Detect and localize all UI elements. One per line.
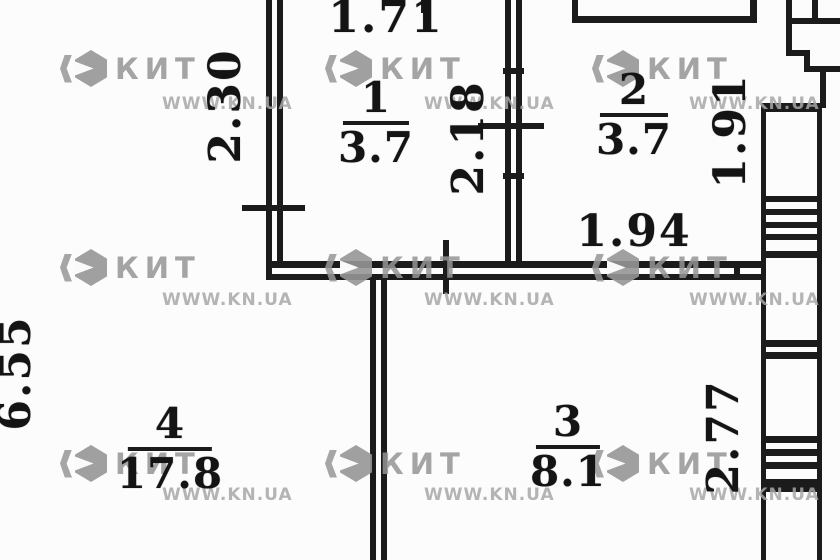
window-sill xyxy=(761,436,822,443)
window-sill xyxy=(761,196,822,202)
window-sill xyxy=(761,340,822,347)
wall-divider-outer xyxy=(505,0,511,268)
wall-top-horizontal xyxy=(572,16,757,23)
window-sill xyxy=(761,449,822,456)
room-area: 3.7 xyxy=(338,127,414,169)
kit-logo-icon xyxy=(60,445,107,482)
room-area: 3.7 xyxy=(596,119,672,161)
watermark-logo: КИТ xyxy=(60,249,201,286)
window-sill xyxy=(761,251,822,258)
watermark-brand: КИТ xyxy=(115,251,201,285)
window-sill xyxy=(761,234,822,240)
dimension-room3-right: 2.77 xyxy=(702,372,746,502)
tick-left-wall xyxy=(242,205,305,211)
watermark-logo: КИТ xyxy=(325,445,466,482)
dimension-room2-width: 1.94 xyxy=(569,210,699,254)
wall-top-stub-right xyxy=(750,0,757,20)
dimension-left-overall: 6.55 xyxy=(0,308,38,438)
dimension-left-upper: 2.30 xyxy=(204,41,248,171)
window-sill xyxy=(761,222,822,228)
window-sill xyxy=(761,462,822,469)
wall-step-stub xyxy=(812,0,818,20)
room-label-4: 4 17.8 xyxy=(117,404,223,495)
wall-step-vertical-3 xyxy=(820,68,826,108)
wall-lower-inner xyxy=(381,274,387,560)
room-area: 8.1 xyxy=(530,451,606,493)
watermark-site: WWW.KN.UA xyxy=(689,290,820,310)
tick-wall-joint xyxy=(734,261,740,280)
window-sill xyxy=(761,352,822,359)
wall-lower-outer xyxy=(370,274,376,560)
watermark-brand: КИТ xyxy=(380,251,466,285)
dimension-room2-right: 1.91 xyxy=(709,66,753,196)
window-sill xyxy=(761,209,822,215)
watermark-logo: КИТ xyxy=(60,50,201,87)
watermark-logo: КИТ xyxy=(325,249,466,286)
room-number: 1 xyxy=(361,78,391,118)
watermark-site: WWW.KN.UA xyxy=(424,290,555,310)
kit-logo-icon xyxy=(60,249,107,286)
room-label-1: 1 3.7 xyxy=(338,78,414,169)
room-number: 4 xyxy=(155,404,185,444)
floor-plan: КИТ КИТ КИТ КИТ КИТ КИТ КИТ КИТ КИТ WWW.… xyxy=(0,0,840,560)
kit-logo-icon xyxy=(60,50,107,87)
room-label-3: 3 8.1 xyxy=(530,402,606,493)
dimension-top-width: 1.71 xyxy=(321,0,451,40)
kit-logo-icon xyxy=(325,445,372,482)
wall-left-inner xyxy=(277,0,283,268)
watermark-brand: КИТ xyxy=(115,52,201,86)
watermark-site: WWW.KN.UA xyxy=(162,290,293,310)
tick-divider-lower xyxy=(503,173,524,179)
room-number: 2 xyxy=(619,70,649,110)
wall-left-outer xyxy=(266,0,272,280)
watermark-brand: КИТ xyxy=(380,447,466,481)
dimension-room1-right: 2.18 xyxy=(447,73,491,203)
kit-logo-icon xyxy=(325,249,372,286)
tick-divider-upper xyxy=(503,68,524,74)
room-label-2: 2 3.7 xyxy=(596,70,672,161)
wall-step-vertical-1 xyxy=(786,0,792,55)
room-number: 3 xyxy=(553,402,583,442)
room-area: 17.8 xyxy=(117,453,223,495)
wall-divider-inner xyxy=(516,0,522,268)
